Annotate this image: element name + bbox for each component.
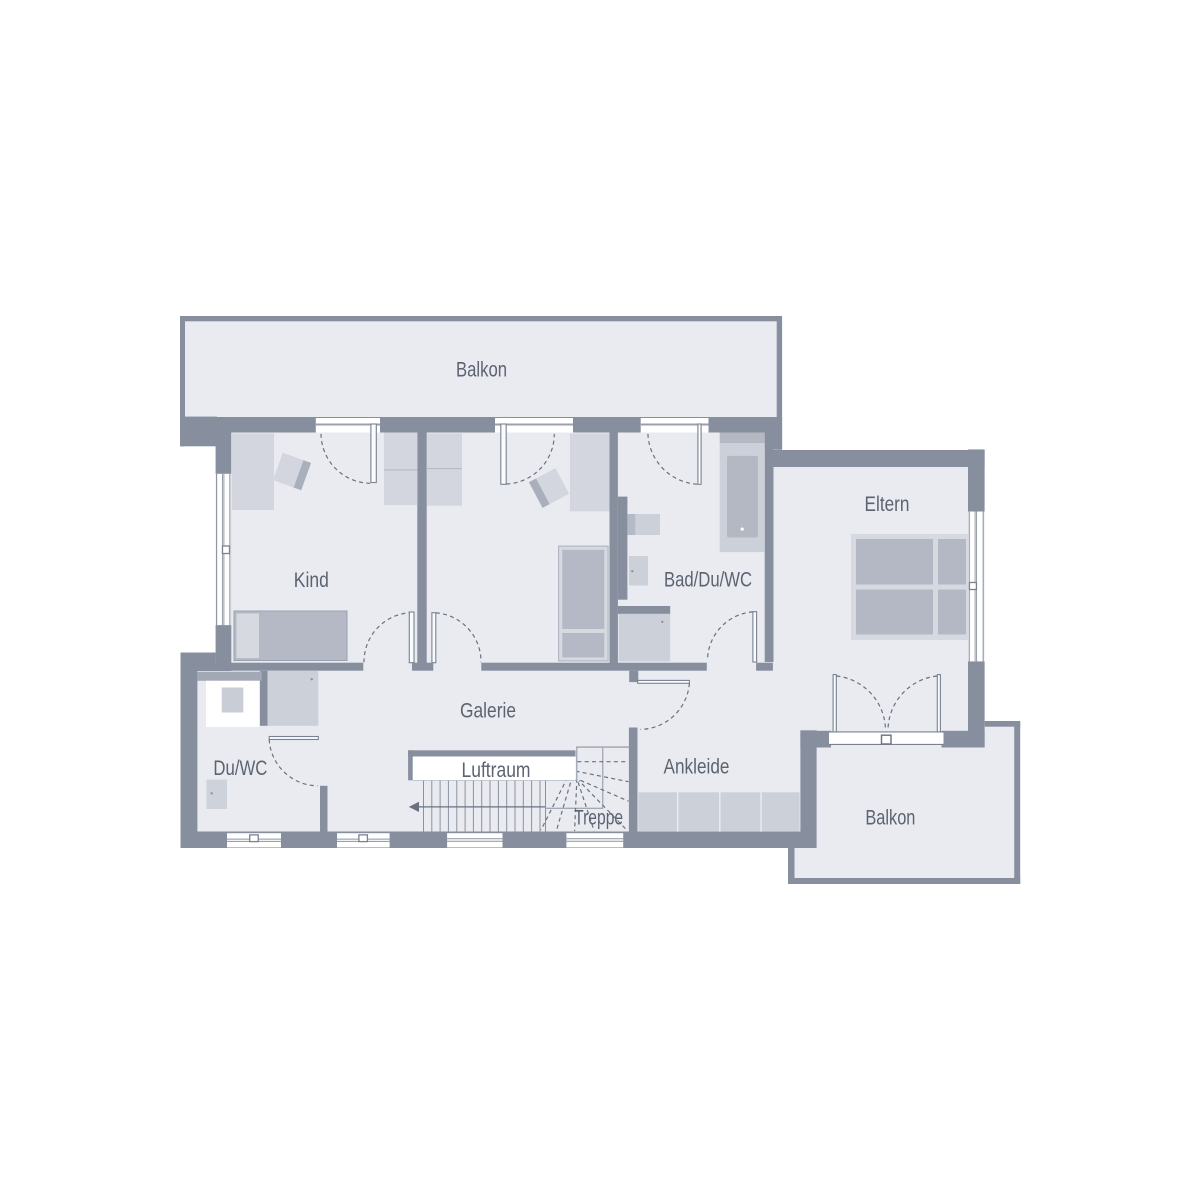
svg-text:Luftraum: Luftraum (462, 758, 531, 782)
svg-text:Balkon: Balkon (456, 358, 507, 382)
svg-text:Du/WC: Du/WC (213, 756, 267, 780)
svg-text:Balkon: Balkon (865, 806, 915, 830)
svg-text:Galerie: Galerie (460, 699, 516, 723)
svg-text:Kind: Kind (294, 568, 329, 592)
svg-text:Bad/Du/WC: Bad/Du/WC (664, 568, 752, 592)
svg-text:Eltern: Eltern (865, 492, 910, 516)
svg-text:Treppe: Treppe (574, 806, 623, 830)
svg-text:Ankleide: Ankleide (664, 755, 730, 779)
